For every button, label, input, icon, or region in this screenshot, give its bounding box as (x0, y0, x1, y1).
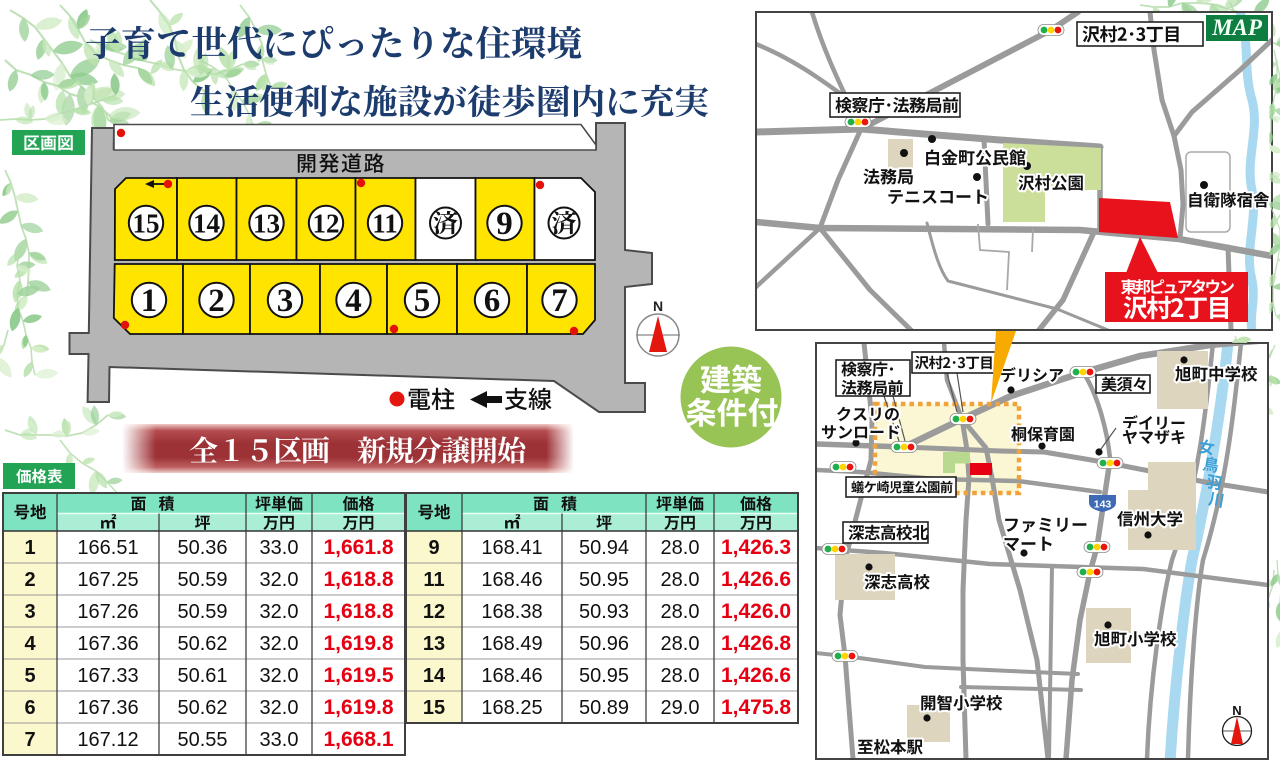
svg-text:5: 5 (24, 665, 35, 687)
svg-text:50.55: 50.55 (177, 729, 227, 751)
svg-text:50.94: 50.94 (579, 537, 629, 559)
svg-text:13: 13 (253, 209, 280, 239)
svg-text:11: 11 (372, 209, 398, 239)
svg-text:50.61: 50.61 (177, 665, 227, 687)
svg-text:15: 15 (133, 209, 160, 239)
svg-text:1: 1 (24, 537, 35, 559)
svg-text:50.62: 50.62 (177, 697, 227, 719)
svg-text:50.93: 50.93 (579, 601, 629, 623)
svg-text:9: 9 (428, 537, 439, 559)
svg-text:50.95: 50.95 (579, 665, 629, 687)
svg-text:32.0: 32.0 (260, 569, 299, 591)
svg-text:50.62: 50.62 (177, 633, 227, 655)
svg-text:50.95: 50.95 (579, 569, 629, 591)
svg-text:14: 14 (193, 209, 220, 239)
svg-text:50.96: 50.96 (579, 633, 629, 655)
svg-text:167.26: 167.26 (77, 601, 138, 623)
svg-text:168.38: 168.38 (481, 601, 542, 623)
svg-text:5: 5 (414, 283, 431, 319)
svg-text:6: 6 (484, 283, 501, 319)
svg-text:167.36: 167.36 (77, 633, 138, 655)
svg-text:168.46: 168.46 (481, 569, 542, 591)
svg-text:168.49: 168.49 (481, 633, 542, 655)
svg-text:3: 3 (277, 283, 294, 319)
svg-text:N: N (1232, 703, 1241, 718)
svg-text:2: 2 (24, 569, 35, 591)
svg-text:15: 15 (423, 697, 445, 719)
svg-text:50.59: 50.59 (177, 569, 227, 591)
svg-text:1: 1 (141, 283, 158, 319)
svg-text:3: 3 (24, 601, 35, 623)
svg-text:143: 143 (1094, 499, 1112, 511)
svg-text:1,619.8: 1,619.8 (323, 696, 393, 719)
svg-text:1,661.8: 1,661.8 (323, 536, 393, 559)
svg-text:6: 6 (24, 697, 35, 719)
svg-text:167.12: 167.12 (77, 729, 138, 751)
svg-text:12: 12 (423, 601, 445, 623)
svg-text:32.0: 32.0 (260, 601, 299, 623)
svg-text:32.0: 32.0 (260, 665, 299, 687)
svg-text:50.59: 50.59 (177, 601, 227, 623)
svg-text:11: 11 (423, 569, 444, 591)
svg-text:7: 7 (551, 283, 568, 319)
svg-text:N: N (653, 298, 663, 314)
svg-text:166.51: 166.51 (77, 537, 138, 559)
svg-text:28.0: 28.0 (661, 569, 700, 591)
svg-text:28.0: 28.0 (661, 601, 700, 623)
svg-text:4: 4 (345, 283, 362, 319)
svg-text:12: 12 (313, 209, 340, 239)
svg-text:50.36: 50.36 (177, 537, 227, 559)
svg-text:1,619.8: 1,619.8 (323, 632, 393, 655)
svg-text:167.33: 167.33 (77, 665, 138, 687)
svg-text:29.0: 29.0 (661, 697, 700, 719)
svg-text:33.0: 33.0 (260, 537, 299, 559)
svg-text:1,618.8: 1,618.8 (323, 600, 393, 623)
svg-text:32.0: 32.0 (260, 697, 299, 719)
svg-text:9: 9 (496, 206, 513, 242)
svg-text:28.0: 28.0 (661, 537, 700, 559)
svg-text:167.36: 167.36 (77, 697, 138, 719)
svg-text:28.0: 28.0 (661, 665, 700, 687)
svg-text:1,426.6: 1,426.6 (721, 568, 791, 591)
svg-text:1,668.1: 1,668.1 (323, 728, 393, 751)
svg-text:168.46: 168.46 (481, 665, 542, 687)
svg-text:4: 4 (24, 633, 36, 655)
svg-text:28.0: 28.0 (661, 633, 700, 655)
svg-text:1,426.0: 1,426.0 (721, 600, 791, 623)
svg-text:50.89: 50.89 (579, 697, 629, 719)
svg-text:168.25: 168.25 (481, 697, 542, 719)
svg-text:1,426.3: 1,426.3 (721, 536, 791, 559)
svg-text:1,426.8: 1,426.8 (721, 632, 791, 655)
svg-text:14: 14 (423, 665, 446, 687)
svg-text:167.25: 167.25 (77, 569, 138, 591)
svg-text:1,426.6: 1,426.6 (721, 664, 791, 687)
svg-text:33.0: 33.0 (260, 729, 299, 751)
svg-text:1,619.5: 1,619.5 (323, 664, 393, 687)
svg-text:32.0: 32.0 (260, 633, 299, 655)
svg-text:168.41: 168.41 (481, 537, 542, 559)
svg-text:1,618.8: 1,618.8 (323, 568, 393, 591)
svg-text:7: 7 (24, 729, 35, 751)
svg-text:13: 13 (423, 633, 445, 655)
svg-text:MAP: MAP (1211, 15, 1263, 40)
svg-text:2: 2 (208, 283, 225, 319)
svg-text:1,475.8: 1,475.8 (721, 696, 791, 719)
